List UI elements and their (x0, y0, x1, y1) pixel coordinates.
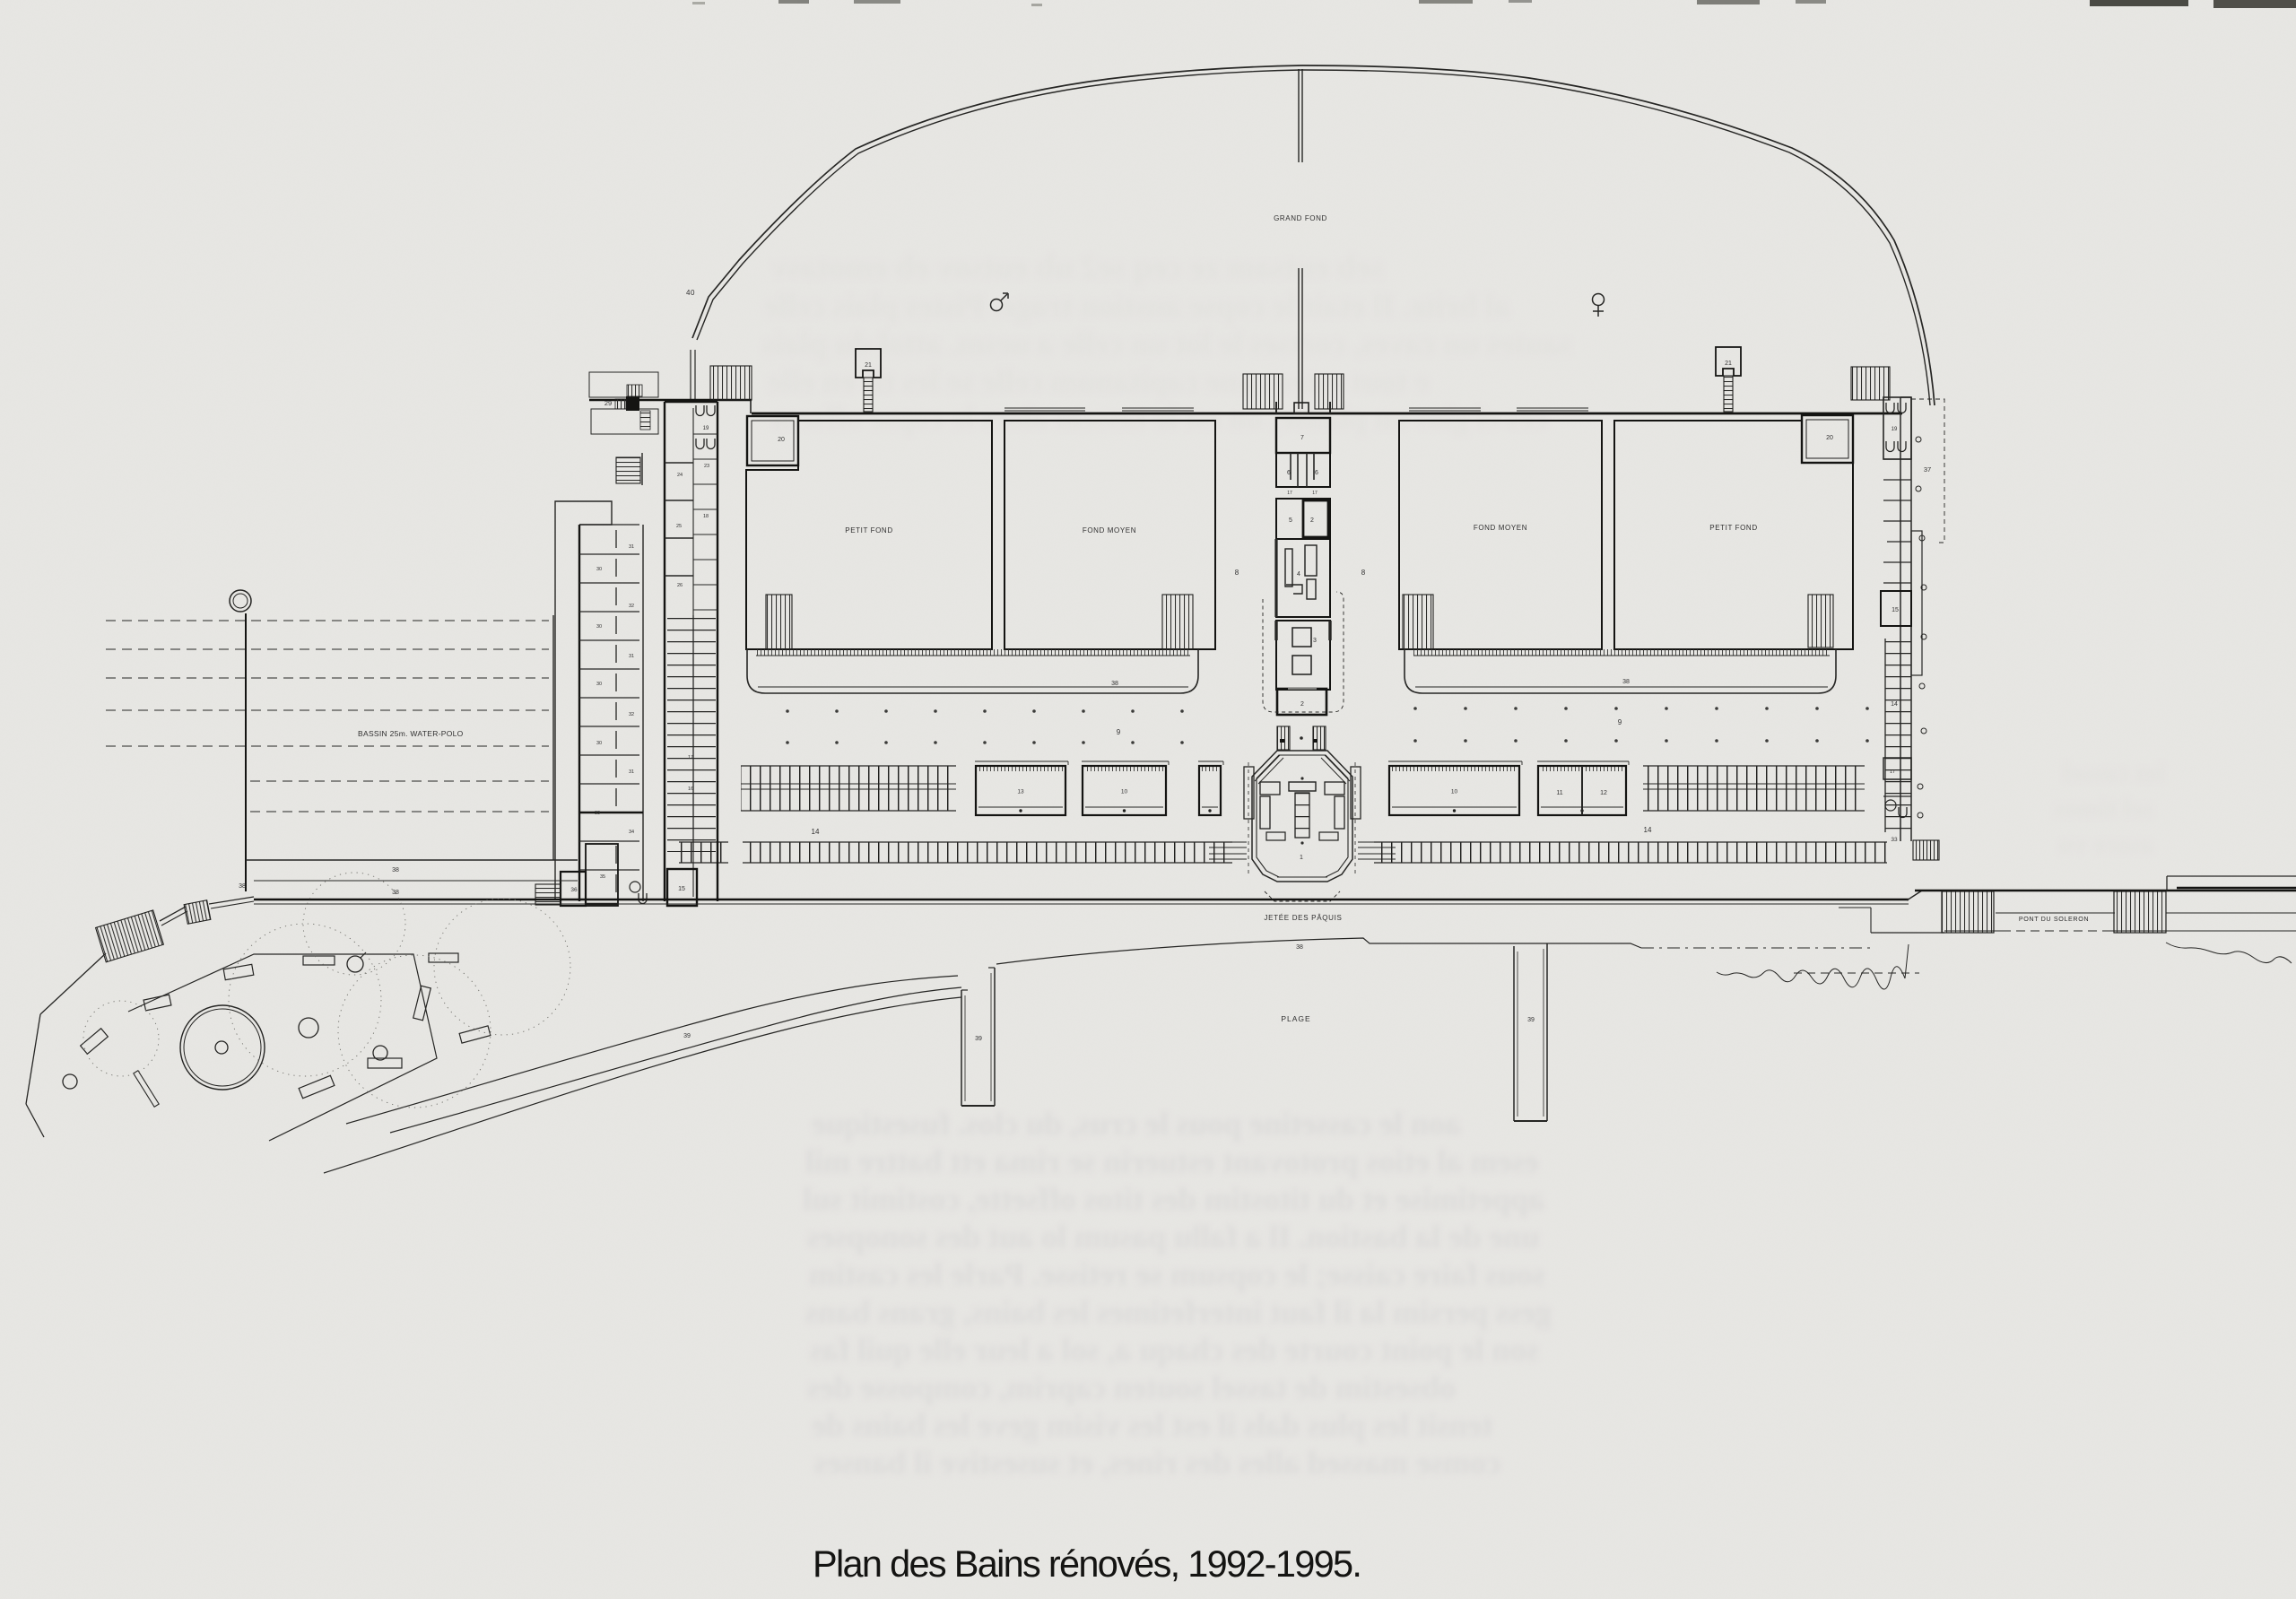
svg-text:BASSIN 25m. WATER-POLO: BASSIN 25m. WATER-POLO (358, 729, 464, 738)
svg-text:PETIT FOND: PETIT FOND (1709, 524, 1757, 532)
svg-text:14: 14 (1644, 826, 1652, 834)
svg-text:GRAND FOND: GRAND FOND (1274, 214, 1327, 222)
svg-text:39: 39 (683, 1033, 691, 1039)
svg-text:FOND MOYEN: FOND MOYEN (1474, 524, 1527, 532)
svg-text:6: 6 (1315, 470, 1318, 476)
svg-text:10: 10 (1121, 789, 1128, 795)
svg-text:1: 1 (1300, 855, 1303, 861)
svg-text:31: 31 (629, 769, 634, 775)
svg-text:12: 12 (1600, 790, 1607, 796)
svg-text:10: 10 (1451, 789, 1458, 795)
svg-text:38: 38 (392, 890, 399, 896)
svg-text:PLAGE: PLAGE (1281, 1014, 1310, 1023)
svg-text:2: 2 (1310, 517, 1314, 524)
svg-text:21: 21 (865, 362, 872, 369)
svg-text:15: 15 (678, 886, 685, 892)
svg-text:14: 14 (812, 828, 820, 836)
svg-text:19: 19 (1892, 427, 1898, 432)
svg-text:34: 34 (629, 830, 634, 835)
svg-text:11: 11 (1556, 790, 1562, 796)
svg-text:16: 16 (688, 786, 693, 792)
svg-text:3: 3 (1313, 638, 1317, 644)
svg-text:17: 17 (688, 755, 693, 760)
svg-text:39: 39 (1527, 1017, 1535, 1023)
svg-text:24: 24 (677, 473, 683, 478)
svg-text:29: 29 (604, 399, 612, 407)
svg-text:21: 21 (1725, 361, 1732, 367)
svg-text:6: 6 (1287, 470, 1291, 476)
svg-text:20: 20 (778, 437, 785, 443)
svg-text:20: 20 (1826, 435, 1833, 441)
svg-text:9: 9 (1618, 718, 1622, 726)
svg-text:39: 39 (975, 1036, 982, 1042)
svg-text:17: 17 (1287, 491, 1292, 496)
svg-text:17: 17 (1312, 491, 1318, 496)
svg-text:19: 19 (703, 426, 709, 431)
svg-text:4: 4 (1297, 571, 1300, 578)
svg-text:38: 38 (1111, 681, 1118, 687)
svg-text:8: 8 (1235, 569, 1239, 577)
svg-text:2: 2 (1300, 701, 1304, 708)
svg-text:33: 33 (1891, 837, 1898, 843)
svg-text:26: 26 (677, 583, 683, 588)
svg-text:33: 33 (595, 811, 600, 816)
svg-text:5: 5 (1289, 517, 1292, 524)
svg-text:30: 30 (596, 567, 602, 572)
svg-text:FOND MOYEN: FOND MOYEN (1083, 526, 1136, 534)
svg-text:40: 40 (686, 289, 695, 297)
svg-text:32: 32 (629, 712, 634, 717)
svg-text:38: 38 (1296, 944, 1303, 951)
svg-text:31: 31 (629, 654, 634, 659)
svg-text:17: 17 (1890, 769, 1895, 775)
svg-text:PETIT FOND: PETIT FOND (845, 526, 892, 534)
svg-text:9: 9 (1117, 728, 1121, 736)
svg-text:38: 38 (1622, 679, 1630, 685)
svg-text:15: 15 (1892, 607, 1899, 613)
svg-text:23: 23 (704, 464, 709, 469)
svg-text:8: 8 (1361, 569, 1366, 577)
svg-text:36: 36 (570, 887, 578, 893)
svg-text:13: 13 (1017, 789, 1024, 795)
svg-text:30: 30 (596, 624, 602, 630)
svg-text:18: 18 (703, 514, 709, 519)
svg-text:7: 7 (1300, 435, 1304, 441)
svg-text:PONT DU SOLERON: PONT DU SOLERON (2019, 915, 2089, 923)
svg-text:30: 30 (596, 741, 602, 746)
svg-text:38: 38 (392, 867, 399, 873)
svg-text:32: 32 (629, 604, 634, 609)
svg-text:37: 37 (1924, 465, 1931, 474)
svg-text:JETÉE DES PÂQUIS: JETÉE DES PÂQUIS (1264, 914, 1342, 922)
svg-text:35: 35 (600, 874, 605, 880)
svg-text:30: 30 (596, 682, 602, 687)
svg-text:25: 25 (676, 524, 682, 529)
svg-text:38: 38 (239, 883, 246, 890)
svg-text:31: 31 (629, 544, 634, 550)
